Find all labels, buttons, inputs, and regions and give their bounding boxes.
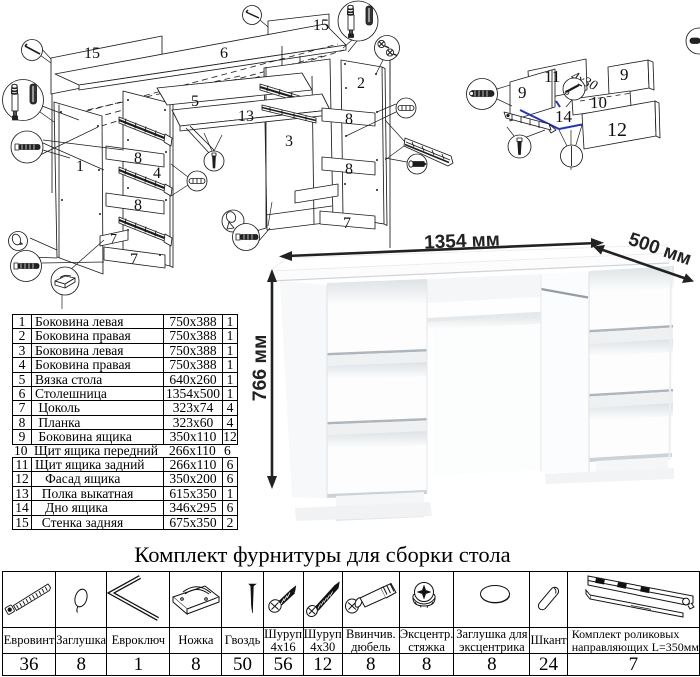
svg-text:7: 7: [130, 251, 138, 268]
svg-text:13: 13: [238, 108, 254, 125]
svg-text:6: 6: [220, 45, 228, 62]
svg-text:8: 8: [345, 111, 353, 128]
svg-text:9: 9: [518, 83, 527, 102]
svg-text:1: 1: [76, 158, 84, 175]
svg-text:11: 11: [544, 67, 560, 86]
svg-text:8: 8: [345, 161, 353, 178]
svg-text:5: 5: [191, 93, 199, 110]
svg-text:1354 мм: 1354 мм: [424, 229, 500, 253]
svg-text:14: 14: [555, 107, 573, 126]
svg-text:2: 2: [357, 75, 365, 92]
svg-text:15: 15: [84, 45, 100, 62]
svg-text:3: 3: [285, 133, 293, 150]
svg-text:8: 8: [134, 150, 142, 167]
svg-text:8: 8: [134, 197, 142, 214]
svg-text:9: 9: [620, 65, 629, 84]
svg-text:7: 7: [110, 232, 117, 247]
svg-text:10: 10: [590, 93, 607, 112]
svg-text:12: 12: [607, 119, 627, 141]
svg-text:766 мм: 766 мм: [249, 335, 271, 402]
svg-text:7: 7: [343, 215, 351, 232]
svg-text:15: 15: [313, 17, 329, 34]
svg-text:4: 4: [153, 165, 161, 182]
